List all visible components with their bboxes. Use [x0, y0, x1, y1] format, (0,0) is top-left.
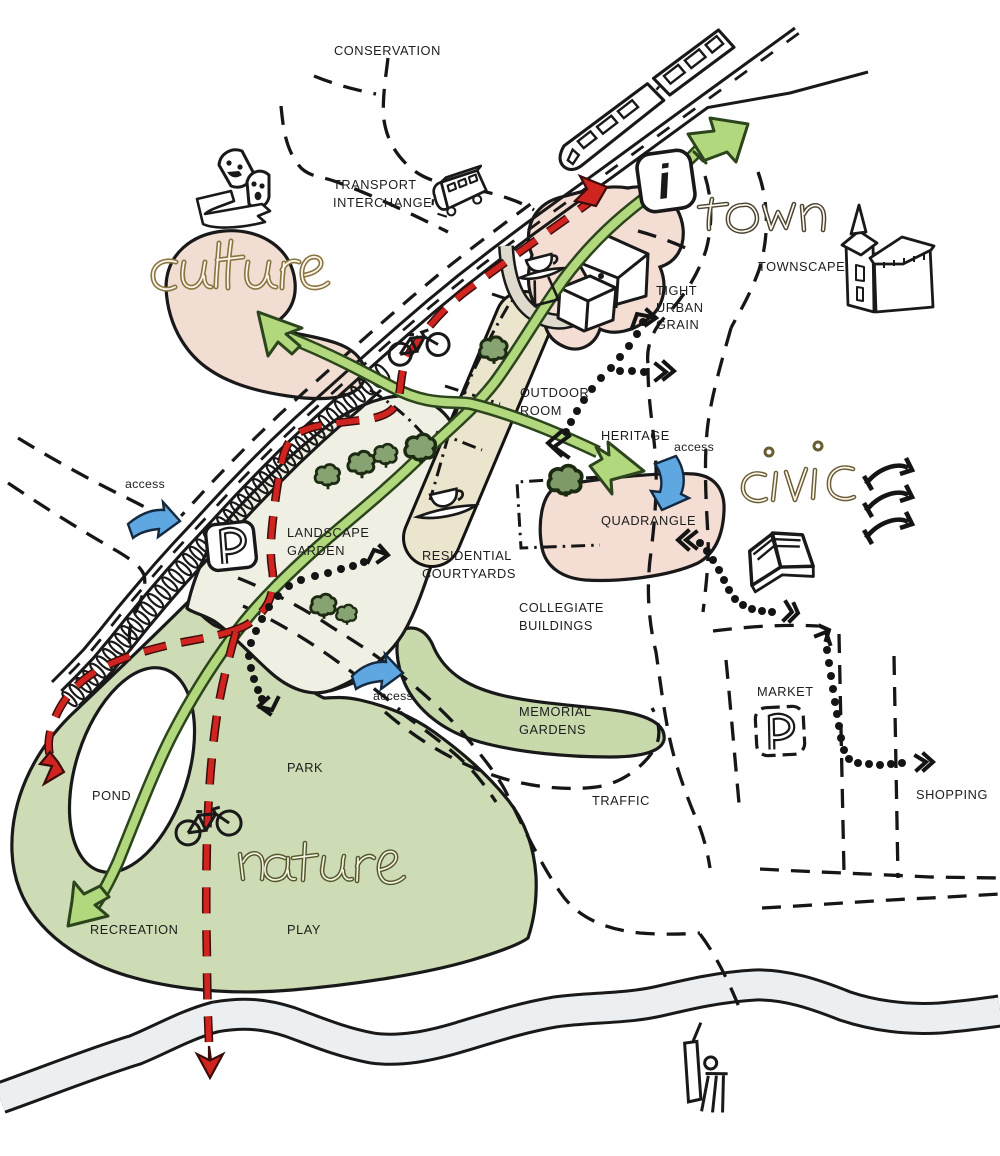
svg-text:TOWNSCAPE: TOWNSCAPE — [758, 259, 845, 274]
svg-text:access: access — [373, 689, 413, 703]
svg-text:POND: POND — [92, 788, 131, 803]
svg-text:COURTYARDS: COURTYARDS — [422, 566, 516, 581]
svg-text:LANDSCAPE: LANDSCAPE — [287, 525, 369, 540]
svg-text:COLLEGIATE: COLLEGIATE — [519, 600, 604, 615]
svg-text:RECREATION: RECREATION — [90, 922, 178, 937]
svg-text:OUTDOOR: OUTDOOR — [520, 385, 589, 400]
svg-text:access: access — [125, 477, 165, 491]
svg-text:TIGHT: TIGHT — [656, 283, 697, 298]
svg-text:QUADRANGLE: QUADRANGLE — [601, 513, 696, 528]
svg-text:MARKET: MARKET — [757, 684, 814, 699]
svg-text:CONSERVATION: CONSERVATION — [334, 43, 441, 58]
svg-text:GARDENS: GARDENS — [519, 722, 586, 737]
svg-text:ROOM: ROOM — [520, 403, 562, 418]
svg-text:TRAFFIC: TRAFFIC — [592, 793, 650, 808]
svg-text:PARK: PARK — [287, 760, 323, 775]
svg-text:MEMORIAL: MEMORIAL — [519, 704, 592, 719]
svg-text:TRANSPORT: TRANSPORT — [333, 177, 417, 192]
svg-text:GRAIN: GRAIN — [656, 317, 699, 332]
svg-text:HERITAGE: HERITAGE — [601, 428, 670, 443]
svg-text:PLAY: PLAY — [287, 922, 321, 937]
svg-text:URBAN: URBAN — [656, 300, 704, 315]
svg-text:SHOPPING: SHOPPING — [916, 787, 988, 802]
svg-text:BUILDINGS: BUILDINGS — [519, 618, 593, 633]
svg-text:access: access — [674, 440, 714, 454]
svg-text:INTERCHANGE: INTERCHANGE — [333, 195, 432, 210]
svg-text:RESIDENTIAL: RESIDENTIAL — [422, 548, 512, 563]
svg-text:GARDEN: GARDEN — [287, 543, 345, 558]
